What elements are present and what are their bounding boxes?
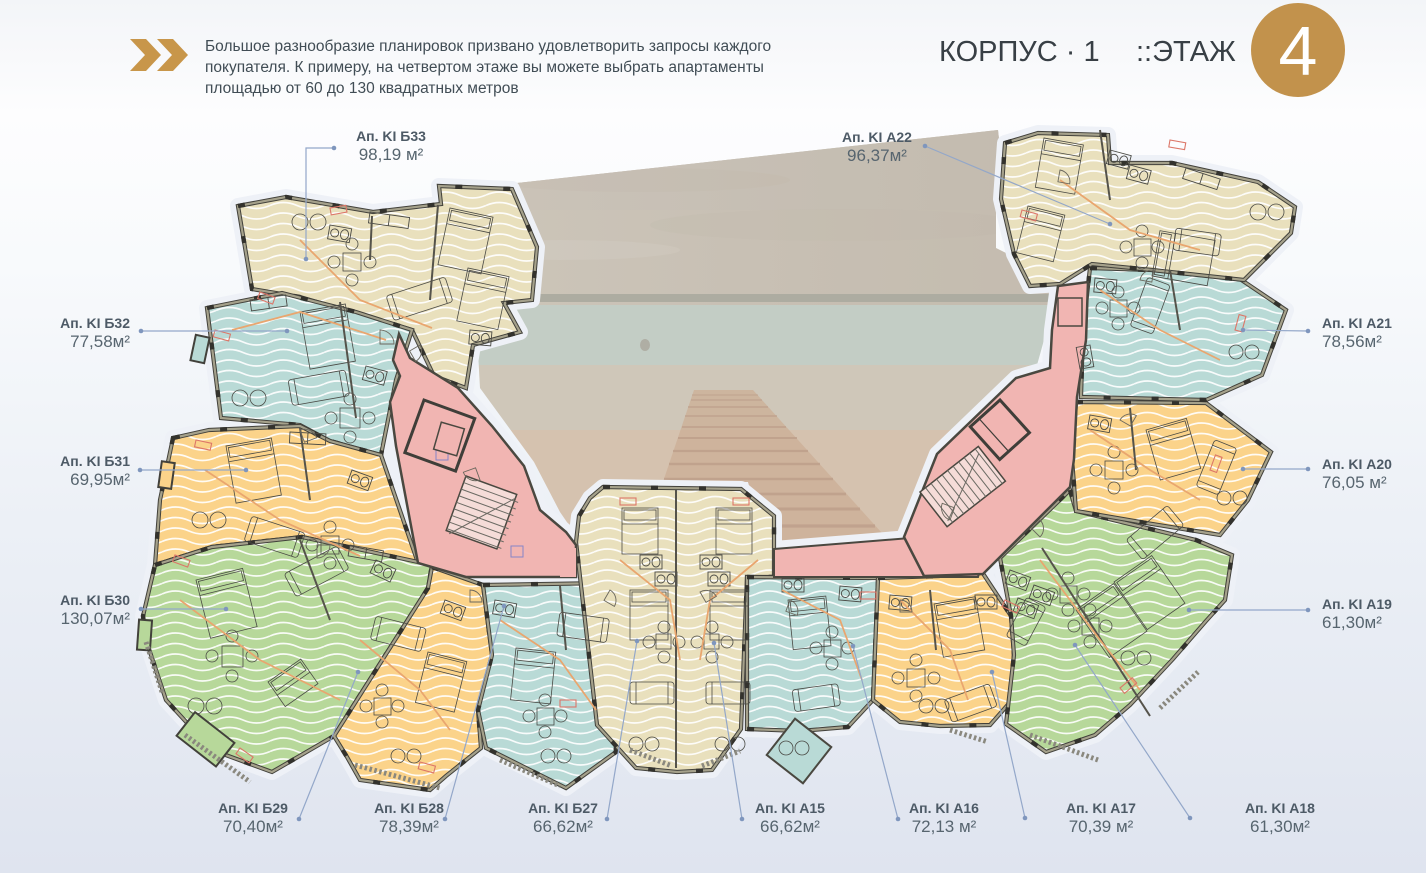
svg-text:70,40м²: 70,40м² <box>223 817 283 836</box>
svg-text:Ап. KI А21: Ап. KI А21 <box>1322 315 1392 331</box>
svg-text:Ап. KI А20: Ап. KI А20 <box>1322 456 1392 472</box>
svg-text:Ап. KI А15: Ап. KI А15 <box>755 800 825 816</box>
svg-text:Ап. KI А22: Ап. KI А22 <box>842 129 912 145</box>
svg-text:Ап. KI Б33: Ап. KI Б33 <box>356 128 426 144</box>
svg-text:Большое разнообразие планиров: Большое разнообразие планировок призвано… <box>205 38 771 55</box>
svg-text:61,30м²: 61,30м² <box>1250 817 1310 836</box>
svg-text:КОРПУС · 1: КОРПУС · 1 <box>939 36 1100 68</box>
svg-text:76,05 м²: 76,05 м² <box>1322 473 1387 492</box>
svg-text:69,95м²: 69,95м² <box>70 470 130 489</box>
svg-text:78,39м²: 78,39м² <box>379 817 439 836</box>
svg-text:72,13 м²: 72,13 м² <box>912 817 977 836</box>
svg-text:78,56м²: 78,56м² <box>1322 332 1382 351</box>
svg-text:66,62м²: 66,62м² <box>760 817 820 836</box>
svg-text:Ап. KI А19: Ап. KI А19 <box>1322 596 1392 612</box>
svg-text:покупателя. К примеру, на четв: покупателя. К примеру, на четвертом этаж… <box>205 59 764 76</box>
svg-text:Ап. KI Б32: Ап. KI Б32 <box>60 315 130 331</box>
svg-text:130,07м²: 130,07м² <box>61 609 131 628</box>
svg-text:77,58м²: 77,58м² <box>70 332 130 351</box>
svg-text:61,30м²: 61,30м² <box>1322 613 1382 632</box>
svg-text:Ап. KI А16: Ап. KI А16 <box>909 800 979 816</box>
svg-text:98,19 м²: 98,19 м² <box>359 145 424 164</box>
svg-text:Ап. KI Б31: Ап. KI Б31 <box>60 453 130 469</box>
svg-text:Ап. KI А18: Ап. KI А18 <box>1245 800 1315 816</box>
svg-text:площадью от 60 до 130 квадратн: площадью от 60 до 130 квадратных метров <box>205 80 519 97</box>
svg-text:Ап. KI Б28: Ап. KI Б28 <box>374 800 444 816</box>
svg-text:66,62м²: 66,62м² <box>533 817 593 836</box>
svg-text:Ап. KI Б29: Ап. KI Б29 <box>218 800 288 816</box>
svg-text:Ап. KI А17: Ап. KI А17 <box>1066 800 1136 816</box>
svg-text:Ап. KI Б27: Ап. KI Б27 <box>528 800 598 816</box>
svg-text:4: 4 <box>1279 12 1318 90</box>
svg-text:96,37м²: 96,37м² <box>847 146 907 165</box>
svg-text:::ЭТАЖ: ::ЭТАЖ <box>1136 36 1236 68</box>
svg-text:Ап. KI Б30: Ап. KI Б30 <box>60 592 130 608</box>
svg-text:70,39 м²: 70,39 м² <box>1069 817 1134 836</box>
